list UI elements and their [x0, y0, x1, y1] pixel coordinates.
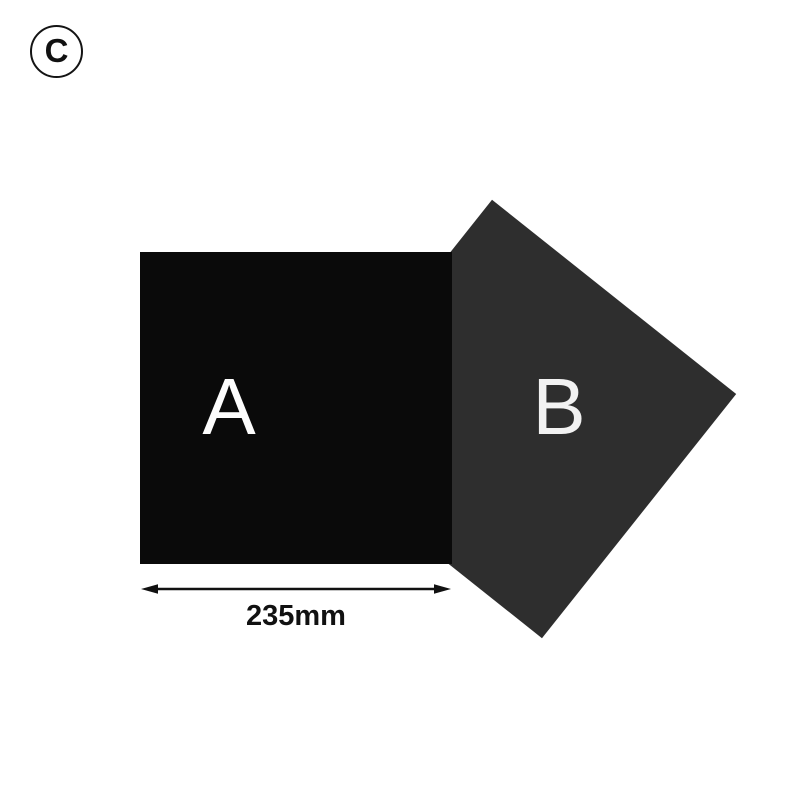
dimension-label: 235mm [140, 600, 452, 633]
shape-a-label: A [202, 367, 255, 447]
shape-a-square [140, 252, 452, 564]
dimension-arrow-icon [140, 581, 452, 597]
shape-b-label: B [532, 367, 585, 447]
diagram-canvas: C A B 235mm [0, 0, 800, 800]
variant-badge-letter: C [45, 34, 69, 67]
variant-badge-circle: C [30, 25, 83, 78]
